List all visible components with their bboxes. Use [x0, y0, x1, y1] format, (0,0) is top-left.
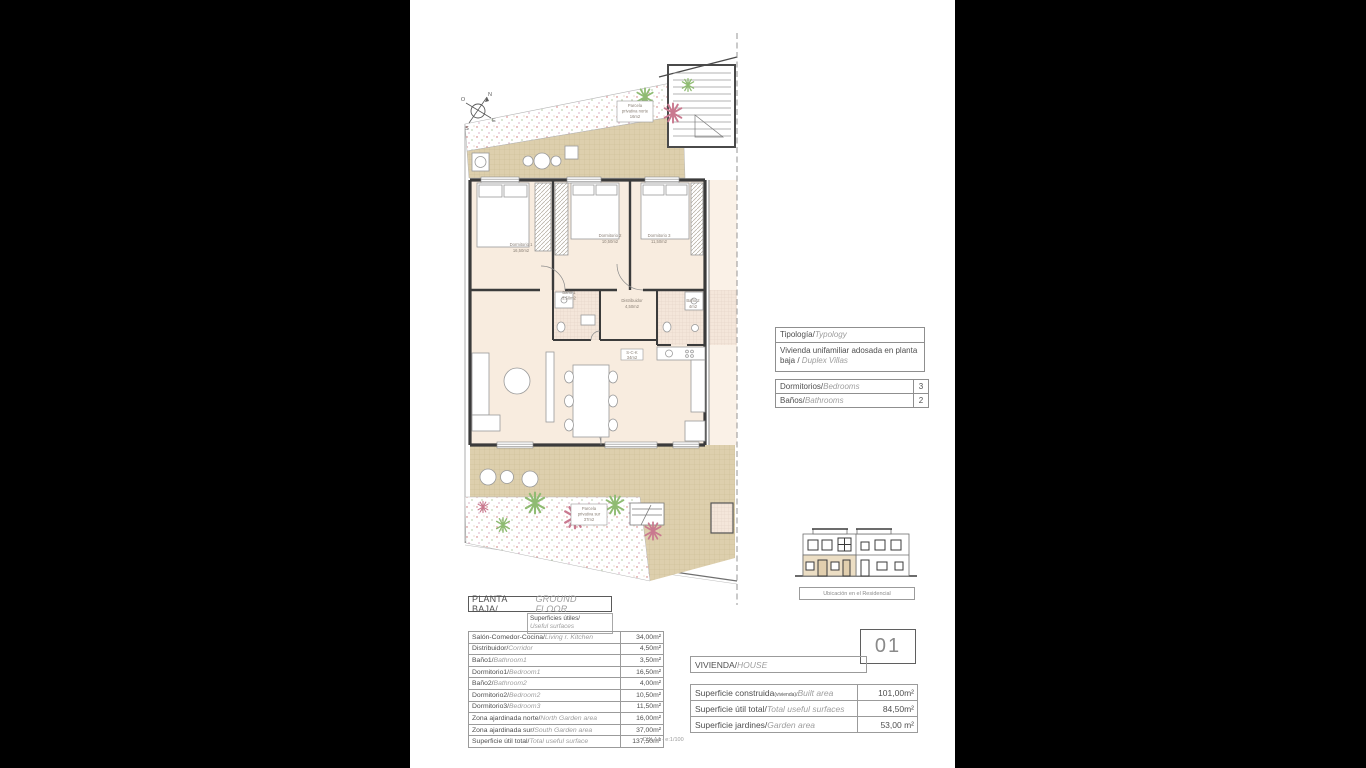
room-area: 16,50m2 — [513, 248, 530, 253]
table-row-total: Superficie útil total/Total useful surfa… — [469, 735, 663, 747]
room-name: Dormitorio 3 — [648, 233, 671, 238]
floor-title-en: GROUND FLOOR — [535, 594, 611, 614]
row-label-sub: (vivienda)/ — [774, 692, 797, 698]
row-label: Dormitorio2/Bedroom2 — [469, 692, 620, 699]
row-label: Superficie jardines/Garden area — [691, 720, 857, 730]
garden-label-line: Parcela — [628, 103, 643, 108]
row-label: Superficie útil total/Total useful surfa… — [691, 704, 857, 714]
row-label-en: Garden area — [767, 720, 815, 730]
vivienda-header-box: VIVIENDA/HOUSE — [690, 656, 867, 673]
compass-s: S — [465, 126, 469, 132]
vivienda-header-en: HOUSE — [737, 660, 767, 670]
table-row: Dormitorio1/Bedroom1 16,50m² — [469, 666, 663, 678]
table-row: Dormitorio2/Bedroom2 10,50m² — [469, 689, 663, 701]
typology-box: Tipología/Typology Vivienda unifamiliar … — [775, 327, 925, 372]
row-label-es: Baño1/ — [472, 657, 494, 664]
row-label-es: Superficie construida — [695, 688, 774, 698]
typology-value: Vivienda unifamiliar adosada en planta b… — [776, 343, 924, 371]
row-value: 16,00m² — [620, 713, 663, 724]
row-label-es: Superficie útil total/ — [472, 738, 529, 745]
row-value: 34,00m² — [620, 632, 663, 643]
row-label: Zona ajardinada norte/North Garden area — [469, 715, 620, 722]
typology-header: Tipología/Typology — [776, 328, 924, 343]
room-name: Baño 1 — [562, 290, 576, 295]
row-label: Zona ajardinada sur/South Garden area — [469, 727, 620, 734]
compass-rose — [466, 97, 491, 123]
label-parcela-sur: Parcela privativa sur 37m2 — [571, 504, 607, 525]
room-area: 4,50m2 — [625, 304, 640, 309]
row-label-en: Total useful surfaces — [767, 704, 845, 714]
row-label: Dormitorio3/Bedroom3 — [469, 703, 620, 710]
floor-title-es: PLANTA BAJA/ — [472, 594, 535, 614]
table-row: Baño2/Bathroom2 4,00m² — [469, 677, 663, 689]
compass-e: E — [492, 118, 496, 124]
room-area: 3,50m2 — [562, 296, 577, 301]
garden-label-line: privativa sur — [578, 512, 601, 517]
garden-label-line: Parcela — [582, 506, 597, 511]
compass-o: O — [461, 97, 466, 103]
bathrooms-label-en: Bathrooms — [805, 396, 844, 405]
room-area: 34m2 — [627, 355, 638, 360]
unit-number-box: 01 — [860, 629, 916, 664]
room-name: Baño 2 — [686, 298, 700, 303]
typology-value-en: Duplex Villas — [802, 356, 848, 365]
room-area: 11,50m2 — [651, 239, 668, 244]
table-row: Superficie jardines/Garden area 53,00 m² — [691, 716, 917, 732]
row-label-es: Dormitorio2/ — [472, 692, 509, 699]
label-bano1: Baño 1 3,50m2 — [562, 290, 577, 301]
surfaces-note-en: Useful surfaces — [530, 623, 574, 630]
bathrooms-label-es: Baños/ — [780, 396, 805, 405]
row-label-es: Dormitorio1/ — [472, 669, 509, 676]
row-value: 16,50m² — [620, 667, 663, 678]
plan-sheet-page: N O S E Dormitorio 1 16,50m2 Dormitorio … — [410, 0, 955, 768]
garden-label-line: privativa norte — [622, 109, 649, 114]
bedrooms-label: Dormitorios/Bedrooms — [776, 382, 913, 391]
row-label-es: Zona ajardinada sur/ — [472, 727, 534, 734]
bathrooms-count: 2 — [913, 394, 928, 407]
row-label-en: Built area — [797, 688, 833, 698]
table-row: Salón-Comedor-Cocina/Living r. Kitchen 3… — [469, 632, 663, 643]
label-parcela-norte: Parcela privativa norte 16m2 — [617, 101, 653, 122]
bedrooms-label-en: Bedrooms — [823, 382, 859, 391]
row-value: 84,50m² — [857, 701, 917, 716]
neighbor-bathroom-tiles — [709, 290, 737, 345]
floor-plan-drawing: N O S E Dormitorio 1 16,50m2 Dormitorio … — [445, 25, 745, 605]
row-label: Dormitorio1/Bedroom1 — [469, 669, 620, 676]
row-label-es: Baño2/ — [472, 680, 494, 687]
typology-label-es: Tipología/ — [780, 330, 815, 339]
row-label: Superficie construida(vivienda)/Built ar… — [691, 688, 857, 698]
typology-label-en: Typology — [815, 330, 847, 339]
room-area: 4m2 — [689, 304, 698, 309]
bedrooms-row: Dormitorios/Bedrooms 3 — [776, 380, 928, 393]
row-value: 4,50m² — [620, 644, 663, 655]
building-elevation-drawing — [793, 524, 919, 586]
row-label-en: Total useful surface — [529, 738, 588, 745]
table-row: Dormitorio3/Bedroom3 11,50m² — [469, 701, 663, 713]
row-label: Distribuidor/Corridor — [469, 645, 620, 652]
surfaces-note-es: Superficies útiles/ — [530, 615, 580, 622]
row-value: 37,00m² — [620, 725, 663, 736]
room-name: Distribuidor — [621, 298, 643, 303]
bathrooms-label: Baños/Bathrooms — [776, 396, 913, 405]
vivienda-header-es: VIVIENDA/ — [695, 660, 737, 670]
table-row: Zona ajardinada sur/South Garden area 37… — [469, 724, 663, 736]
row-label-en: Bedroom3 — [509, 703, 540, 710]
row-label-es: Superficie jardines/ — [695, 720, 767, 730]
location-caption-box: Ubicación en el Residencial — [799, 587, 915, 600]
compass-n: N — [488, 92, 492, 98]
row-label-es: Zona ajardinada norte/ — [472, 715, 540, 722]
row-label-es: Superficie útil total/ — [695, 704, 767, 714]
rooms-count-table: Dormitorios/Bedrooms 3 Baños/Bathrooms 2 — [775, 379, 929, 408]
bedrooms-label-es: Dormitorios/ — [780, 382, 823, 391]
row-value: 4,00m² — [620, 678, 663, 689]
scale-note: DIN A4 - e:1/100 — [643, 737, 684, 743]
screen: { "page": { "scale_note": "DIN A4 - e:1/… — [0, 0, 1366, 768]
row-label-en: South Garden area — [534, 727, 592, 734]
row-label-es: Dormitorio3/ — [472, 703, 509, 710]
row-value: 11,50m² — [620, 702, 663, 713]
garden-label-line: 37m2 — [584, 517, 595, 522]
garden-label-line: 16m2 — [630, 114, 641, 119]
floor-title-box: PLANTA BAJA/GROUND FLOOR — [468, 596, 612, 612]
location-caption: Ubicación en el Residencial — [823, 591, 891, 597]
bedrooms-count: 3 — [913, 380, 928, 393]
row-label: Baño1/Bathroom1 — [469, 657, 620, 664]
row-label: Superficie útil total/Total useful surfa… — [469, 738, 620, 745]
table-row: Superficie útil total/Total useful surfa… — [691, 700, 917, 716]
table-row: Superficie construida(vivienda)/Built ar… — [691, 685, 917, 700]
row-label: Baño2/Bathroom2 — [469, 680, 620, 687]
room-name: Dormitorio 2 — [599, 233, 622, 238]
bathrooms-row: Baños/Bathrooms 2 — [776, 393, 928, 407]
label-sck: S-C-K 34m2 — [621, 349, 643, 360]
row-label-es: Distribuidor/ — [472, 645, 508, 652]
unit-summary-table: Superficie construida(vivienda)/Built ar… — [690, 684, 918, 733]
unit-number: 01 — [875, 635, 901, 658]
row-label-en: Corridor — [508, 645, 533, 652]
table-row: Baño1/Bathroom1 3,50m² — [469, 654, 663, 666]
table-row: Zona ajardinada norte/North Garden area … — [469, 712, 663, 724]
row-value: 10,50m² — [620, 690, 663, 701]
row-value: 101,00m² — [857, 685, 917, 700]
typology-value-es: Vivienda unifamiliar adosada en planta b… — [780, 346, 917, 365]
row-value: 3,50m² — [620, 655, 663, 666]
row-label: Salón-Comedor-Cocina/Living r. Kitchen — [469, 634, 620, 641]
row-label-en: North Garden area — [540, 715, 597, 722]
row-label-es: Salón-Comedor-Cocina/ — [472, 634, 545, 641]
row-label-en: Living r. Kitchen — [545, 634, 593, 641]
room-name: Dormitorio 1 — [510, 242, 533, 247]
row-value: 53,00 m² — [857, 717, 917, 732]
row-label-en: Bathroom1 — [494, 657, 527, 664]
row-label-en: Bedroom2 — [509, 692, 540, 699]
row-label-en: Bathroom2 — [494, 680, 527, 687]
row-label-en: Bedroom1 — [509, 669, 540, 676]
table-row: Distribuidor/Corridor 4,50m² — [469, 643, 663, 655]
surfaces-table: Salón-Comedor-Cocina/Living r. Kitchen 3… — [468, 631, 664, 748]
room-area: 10,50m2 — [602, 239, 619, 244]
